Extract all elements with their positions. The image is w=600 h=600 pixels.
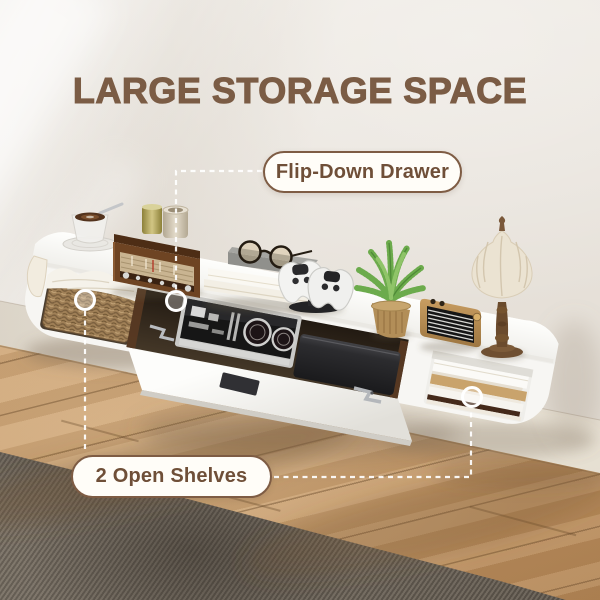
spoon (100, 204, 122, 213)
callout-label-flip-down-drawer: Flip-Down Drawer (263, 151, 462, 193)
callout-dot-books (463, 388, 482, 407)
gold-canister (142, 206, 162, 234)
product-showcase: LARGE STORAGE SPACE Flip-Down Drawer 2 O… (0, 0, 600, 600)
lamp-finial (499, 216, 505, 231)
callout-label-open-shelves: 2 Open Shelves (71, 455, 272, 498)
callout-dot-drawer (167, 292, 186, 311)
callout-dot-basket (76, 291, 95, 310)
page-title: LARGE STORAGE SPACE (0, 70, 600, 112)
